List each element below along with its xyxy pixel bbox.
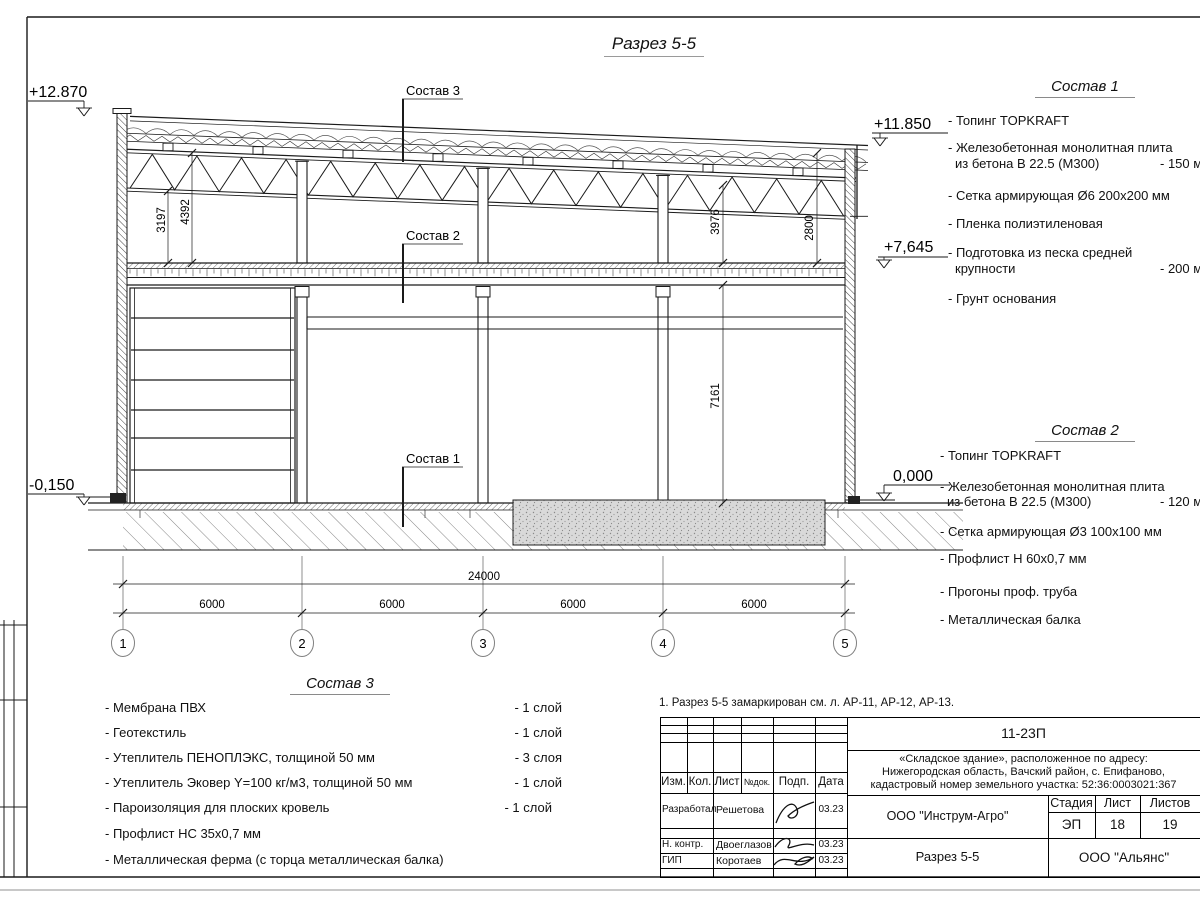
roof-insulation-arc bbox=[698, 150, 722, 156]
elevation-arrow bbox=[78, 108, 84, 116]
truss-bottom-chord bbox=[488, 205, 850, 219]
sostav2-heading: Состав 2 bbox=[1035, 422, 1135, 442]
dim-bay-3: 6000 bbox=[560, 599, 586, 611]
purlin bbox=[703, 165, 713, 173]
apron-left-block bbox=[110, 493, 126, 503]
date-developer: 03.23 bbox=[815, 803, 847, 817]
header-list: Лист bbox=[713, 772, 741, 793]
signature-developer bbox=[773, 797, 817, 829]
axis-number: 5 bbox=[841, 636, 848, 651]
roof-insulation-arc bbox=[818, 155, 842, 161]
stage-label: Стадия bbox=[1048, 795, 1095, 812]
roof-insulation-arc bbox=[650, 149, 674, 155]
sostav3-item-value: - 1 слой bbox=[502, 775, 562, 790]
dim-7161: 7161 bbox=[710, 383, 722, 409]
roof-line bbox=[130, 116, 868, 145]
page-title: Разрез 5-5 bbox=[604, 34, 704, 57]
purlin bbox=[613, 161, 623, 169]
sostav3-heading: Состав 3 bbox=[290, 675, 390, 695]
apron-right-block bbox=[848, 496, 860, 504]
object-address-line: кадастровый номер земельного участка: 52… bbox=[847, 779, 1200, 792]
elevation-arrow bbox=[874, 138, 880, 146]
roof-insulation-arc bbox=[530, 144, 554, 150]
roof-insulation-arc bbox=[266, 133, 290, 139]
dim-2800: 2800 bbox=[804, 215, 816, 241]
sostav3-item-value: - 1 слой bbox=[502, 725, 562, 740]
dim-bay-1: 6000 bbox=[199, 599, 225, 611]
sostav2-block: Состав 2 - Топинг TOPKRAFT - Железобетон… bbox=[940, 418, 1200, 648]
title-block: 11-23П «Складское здание», расположенное… bbox=[660, 717, 1200, 877]
sostav1-item: - Грунт основания bbox=[948, 291, 1056, 306]
header-izm: Изм. bbox=[660, 772, 687, 793]
sostav1-item: - Подготовка из песка средней bbox=[948, 245, 1132, 260]
roof-insulation-arc bbox=[626, 148, 650, 154]
date-gip: 03.23 bbox=[815, 854, 847, 868]
name-developer: Решетова bbox=[716, 803, 772, 817]
column-capital bbox=[476, 287, 490, 298]
roof-insulation-arc bbox=[770, 153, 794, 159]
roof-insulation-arc bbox=[578, 146, 602, 152]
sostav1-item-value: - 200 мм bbox=[1160, 261, 1200, 276]
elevation-arrow bbox=[78, 497, 84, 505]
roof-line bbox=[122, 133, 868, 162]
sostav2-item: - Профлист Н 60х0,7 мм bbox=[940, 551, 1087, 566]
roof-insulation-arc bbox=[410, 139, 434, 145]
wall-left bbox=[117, 113, 127, 503]
roof-insulation-arc bbox=[722, 151, 746, 157]
wall-right bbox=[845, 149, 855, 503]
roof-insulation-arc bbox=[386, 138, 410, 144]
column-upper bbox=[297, 161, 307, 263]
sostav3-item: - Геотекстиль bbox=[105, 725, 186, 740]
sostav3-item: - Утеплитель ПЕНОПЛЭКС, толщиной 50 мм bbox=[105, 750, 375, 765]
name-gip: Коротаев bbox=[716, 854, 772, 868]
sostav3-item: - Пароизоляция для плоских кровель bbox=[105, 800, 329, 815]
titleblock-line bbox=[713, 717, 714, 877]
sostav1-item: крупности bbox=[955, 261, 1015, 276]
axis-bubble-2: 2 bbox=[291, 630, 314, 657]
sheets-value: 19 bbox=[1140, 812, 1200, 838]
header-data: Дата bbox=[815, 772, 847, 793]
role-gip: ГИП bbox=[662, 854, 712, 868]
sostav2-item: - Прогоны проф. труба bbox=[940, 584, 1077, 599]
drawing-sheet: { "page_title": "Разрез 5-5", "note": "1… bbox=[0, 0, 1200, 900]
purlin bbox=[163, 143, 173, 151]
purlin bbox=[523, 157, 533, 165]
sostav3-item-value: - 3 слоя bbox=[502, 750, 562, 765]
object-address-line: Нижегородская область, Вачский район, с.… bbox=[847, 766, 1200, 779]
column-lower bbox=[297, 297, 307, 503]
purlin bbox=[793, 168, 803, 176]
roof-insulation-arc bbox=[482, 142, 506, 148]
dim-bay-2: 6000 bbox=[379, 599, 405, 611]
axis-number: 2 bbox=[298, 636, 305, 651]
role-ncontrol: Н. контр. bbox=[662, 838, 712, 852]
roof-insulation-arc bbox=[434, 140, 458, 146]
header-ndok: №док. bbox=[741, 772, 773, 793]
sheets-label: Листов bbox=[1140, 795, 1200, 812]
sostav3-item: - Утеплитель Эковер Y=100 кг/м3, толщино… bbox=[105, 775, 412, 790]
titleblock-line bbox=[660, 733, 847, 734]
dim-total-24000: 24000 bbox=[468, 571, 500, 583]
sostav2-item: - Металлическая балка bbox=[940, 612, 1081, 627]
axis-number: 1 bbox=[119, 636, 126, 651]
callout-sostav-3: Состав 3 bbox=[406, 83, 460, 98]
elevation-arrow bbox=[880, 138, 886, 146]
purlin bbox=[343, 150, 353, 158]
sostav3-block: Состав 3 - Мембрана ПВХ - 1 слой - Геоте… bbox=[105, 672, 575, 882]
elevation-ground: -0,150 bbox=[29, 477, 74, 494]
signature-stroke bbox=[774, 839, 814, 866]
sostav2-item: - Сетка армирующая Ø3 100х100 мм bbox=[940, 524, 1162, 539]
titleblock-line bbox=[660, 868, 847, 869]
elevation-arrow bbox=[878, 260, 884, 268]
sostav1-item: - Топинг TOPKRAFT bbox=[948, 113, 1069, 128]
date-ncontrol: 03.23 bbox=[815, 838, 847, 852]
sostav3-item: - Металлическая ферма (с торца металличе… bbox=[105, 852, 444, 867]
elevation-arrow bbox=[84, 497, 90, 505]
object-address-line: «Складское здание», расположенное по адр… bbox=[847, 753, 1200, 766]
roof-insulation-arc bbox=[458, 141, 482, 147]
column-lower bbox=[658, 297, 668, 503]
axis-bubble-5: 5 bbox=[834, 630, 857, 657]
titleblock-line bbox=[660, 828, 847, 829]
roof-insulation-arc bbox=[314, 135, 338, 141]
roof-insulation-arc bbox=[674, 150, 698, 156]
column-upper bbox=[658, 175, 668, 263]
roof-insulation-arc bbox=[170, 130, 194, 136]
callout-sostav-1: Состав 1 bbox=[406, 451, 460, 466]
roof-insulation-arc bbox=[362, 137, 386, 143]
dim-3197: 3197 bbox=[156, 207, 168, 233]
sostav1-item: - Железобетонная монолитная плита bbox=[948, 140, 1173, 155]
sostav2-item: - Топинг TOPKRAFT bbox=[940, 448, 1061, 463]
sostav2-item-value: - 120 мм bbox=[1160, 494, 1200, 509]
stage-value: ЭП bbox=[1048, 812, 1095, 838]
sand-pad bbox=[513, 500, 825, 545]
sostav3-item: - Профлист НС 35х0,7 мм bbox=[105, 826, 261, 841]
org-name: ООО "Инструм-Агро" bbox=[847, 795, 1048, 838]
section-name: Разрез 5-5 bbox=[847, 838, 1048, 877]
signature-stroke bbox=[776, 802, 814, 823]
purlin bbox=[433, 154, 443, 162]
roof-insulation-arc bbox=[194, 131, 218, 137]
name-ncontrol: Двоеглазов bbox=[716, 838, 772, 852]
titleblock-line bbox=[660, 725, 847, 726]
callout-sostav-2: Состав 2 bbox=[406, 228, 460, 243]
roof-insulation-arc bbox=[290, 134, 314, 140]
sostav1-item-value: - 150 мм bbox=[1160, 156, 1200, 171]
elevation-arrow bbox=[84, 108, 90, 116]
roof-insulation-arc bbox=[554, 145, 578, 151]
sostav1-heading: Состав 1 bbox=[1035, 78, 1135, 98]
axis-number: 3 bbox=[479, 636, 486, 651]
elevation-zero: 0,000 bbox=[893, 468, 933, 485]
column-upper bbox=[478, 168, 488, 263]
roof-insulation-arc bbox=[242, 133, 266, 139]
titleblock-line bbox=[660, 717, 661, 877]
titleblock-line bbox=[660, 742, 847, 743]
sheet-value: 18 bbox=[1095, 812, 1140, 838]
titleblock-line bbox=[660, 793, 847, 794]
purlin bbox=[253, 147, 263, 155]
document-code: 11-23П bbox=[847, 717, 1200, 750]
column-capital bbox=[295, 287, 309, 298]
header-kol: Кол. bbox=[687, 772, 713, 793]
parapet-cap bbox=[113, 109, 131, 114]
floor2-topping bbox=[127, 263, 845, 269]
axis-bubble-1: 1 bbox=[112, 630, 135, 657]
roof-insulation-arc bbox=[746, 152, 770, 158]
roof-insulation-arc bbox=[506, 143, 530, 149]
elevation-roof-left: +12.870 bbox=[29, 84, 87, 101]
sostav3-item-value: - 1 слой bbox=[502, 700, 562, 715]
sheet-label: Лист bbox=[1095, 795, 1140, 812]
header-podp: Подп. bbox=[773, 772, 815, 793]
axis-bubble-3: 3 bbox=[472, 630, 495, 657]
sostav1-item: - Пленка полиэтиленовая bbox=[948, 216, 1103, 231]
titleblock-line bbox=[660, 877, 1200, 878]
roof-insulation-arc bbox=[338, 136, 362, 142]
sostav1-item: из бетона В 22.5 (М300) bbox=[955, 156, 1099, 171]
signature-gip bbox=[771, 833, 817, 875]
roof-insulation-arc bbox=[218, 132, 242, 138]
titleblock-line bbox=[847, 750, 1200, 751]
roof-insulation-arc bbox=[146, 129, 170, 135]
elevation-arrow bbox=[884, 260, 890, 268]
axis-bubble-4: 4 bbox=[652, 630, 675, 657]
rack bbox=[130, 288, 295, 503]
role-developer: Разработал bbox=[662, 803, 712, 817]
dim-3976: 3976 bbox=[710, 209, 722, 235]
elevation-floor2: +7,645 bbox=[884, 239, 933, 256]
firm-name: ООО "Альянс" bbox=[1048, 838, 1200, 877]
sostav2-item: - Железобетонная монолитная плита bbox=[940, 479, 1165, 494]
sostav3-item-value: - 1 слой bbox=[492, 800, 552, 815]
sostav1-item: - Сетка армирующая Ø6 200х200 мм bbox=[948, 188, 1170, 203]
sostav2-item: из бетона В 22.5 (М300) bbox=[947, 494, 1091, 509]
column-capital bbox=[656, 287, 670, 298]
column-lower bbox=[478, 297, 488, 503]
sheet-note: 1. Разрез 5-5 замаркирован см. л. АР-11,… bbox=[659, 697, 954, 709]
roof-insulation-arc bbox=[602, 147, 626, 153]
sostav1-block: Состав 1 - Топинг TOPKRAFT - Железобетон… bbox=[948, 75, 1200, 325]
dim-bay-4: 6000 bbox=[741, 599, 767, 611]
axis-number: 4 bbox=[659, 636, 666, 651]
sostav3-item: - Мембрана ПВХ bbox=[105, 700, 206, 715]
dim-4392: 4392 bbox=[180, 199, 192, 225]
elevation-roof-right: +11.850 bbox=[874, 116, 931, 133]
